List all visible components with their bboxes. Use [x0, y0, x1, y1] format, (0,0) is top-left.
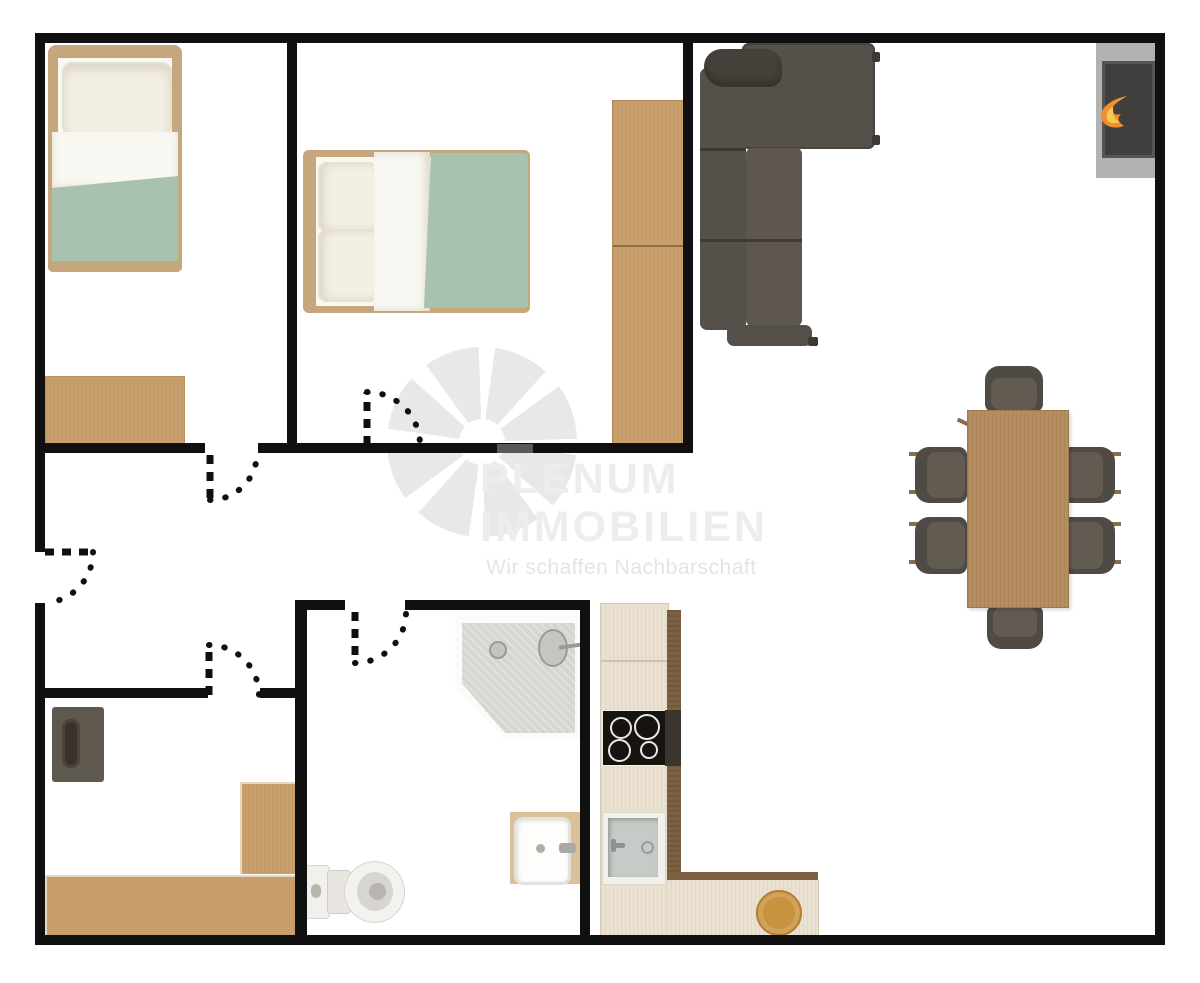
cooktop-burner: [610, 717, 632, 739]
sofa-headrest: [704, 49, 782, 87]
appliance-slot: [62, 719, 80, 768]
sofa-armrest: [727, 325, 812, 346]
toilet-flush-button: [311, 884, 321, 898]
wall-outer-right: [1155, 33, 1165, 945]
kitchen-counter-column: [600, 603, 669, 939]
kitchen-counter-arm: [667, 880, 819, 937]
fireplace: [1096, 41, 1160, 178]
kitchen-drain-icon: [641, 841, 654, 854]
wardrobe-divider: [613, 245, 684, 247]
sofa-seat-column: [746, 148, 802, 326]
toilet: [305, 861, 403, 921]
single-bed-duvet: [52, 176, 178, 262]
cooktop-burner: [640, 741, 658, 759]
dining-chair-left-1: [915, 447, 967, 503]
single-bed: [48, 45, 182, 272]
double-bed-duvet: [424, 153, 528, 308]
shower-drain-icon: [489, 641, 507, 659]
cooktop: [602, 710, 666, 766]
cutting-board: [756, 890, 802, 936]
floor-plan: PLENUM IMMOBILIEN Wir schaffen Nachbarsc…: [0, 0, 1200, 983]
watermark-brand-line1: PLENUM: [480, 458, 680, 501]
dining-chair-right-2: [1063, 517, 1115, 574]
utility-sideboard-horizontal: [45, 875, 295, 936]
single-bed-footboard: [48, 261, 182, 272]
kitchen-faucet-icon: [611, 839, 616, 852]
wall-outer-bottom: [35, 935, 1165, 945]
door-bedroom1: [210, 453, 257, 500]
dining-chair-bottom: [987, 605, 1043, 649]
dining-chair-right-1: [1063, 447, 1115, 503]
kitchen-counter-divider: [601, 660, 668, 662]
utility-sideboard-vertical: [240, 782, 295, 874]
wall-outer-left-lower: [35, 603, 45, 945]
dining-table: [967, 410, 1069, 608]
wardrobe: [612, 100, 685, 445]
wall-threshold-gray: [497, 444, 533, 453]
door-bathroom: [355, 612, 406, 663]
double-bed-pillow-top: [318, 162, 378, 232]
washbasin-drain-icon: [536, 844, 545, 853]
watermark-tagline: Wir schaffen Nachbarschaft: [486, 557, 757, 578]
door-utility: [209, 645, 259, 695]
wall-bathroom-top-right: [405, 600, 590, 610]
wall-bathroom-right: [580, 600, 590, 945]
wall-bedroom2-bottom: [297, 443, 693, 453]
sofa-back-column: [700, 68, 746, 330]
dining-chair-left-2: [915, 517, 967, 574]
appliance: [52, 707, 104, 782]
wall-bedroom1-bottom-right: [258, 443, 297, 453]
washbasin-faucet-icon: [559, 843, 576, 853]
double-bed-sheet-fold: [374, 152, 430, 311]
flame-icon: [1097, 93, 1135, 131]
dining-chair-top: [985, 366, 1043, 412]
washbasin: [510, 812, 581, 884]
kitchen-sink: [602, 812, 666, 885]
wall-bedroom1-bedroom2: [287, 33, 297, 453]
wall-bathroom-top-left: [297, 600, 345, 610]
toilet-bowl-center: [369, 883, 386, 900]
kitchen-counter-arm-edge: [667, 872, 818, 880]
door-entry: [45, 552, 93, 603]
double-bed-pillow-bottom: [318, 229, 378, 302]
toilet-bowl: [344, 861, 405, 923]
cooktop-burner: [608, 739, 631, 762]
wall-bedroom1-bottom-left: [35, 443, 205, 453]
bedroom1-rug: [45, 376, 185, 444]
wall-outer-top: [35, 33, 1165, 43]
wall-utility-bathroom: [295, 600, 307, 945]
shower: [455, 616, 582, 740]
wall-outer-left-upper: [35, 33, 45, 552]
wall-bedroom2-living: [683, 33, 693, 453]
cooktop-burner: [634, 714, 660, 740]
watermark-brand-line2: IMMOBILIEN: [480, 506, 768, 549]
sofa-foot: [872, 52, 880, 62]
double-bed: [303, 150, 530, 313]
single-bed-pillow: [62, 62, 172, 136]
cooktop-side-panel: [665, 710, 681, 766]
sofa-foot: [808, 337, 818, 346]
sofa-foot: [872, 135, 880, 145]
wall-utility-top-left: [35, 688, 208, 698]
